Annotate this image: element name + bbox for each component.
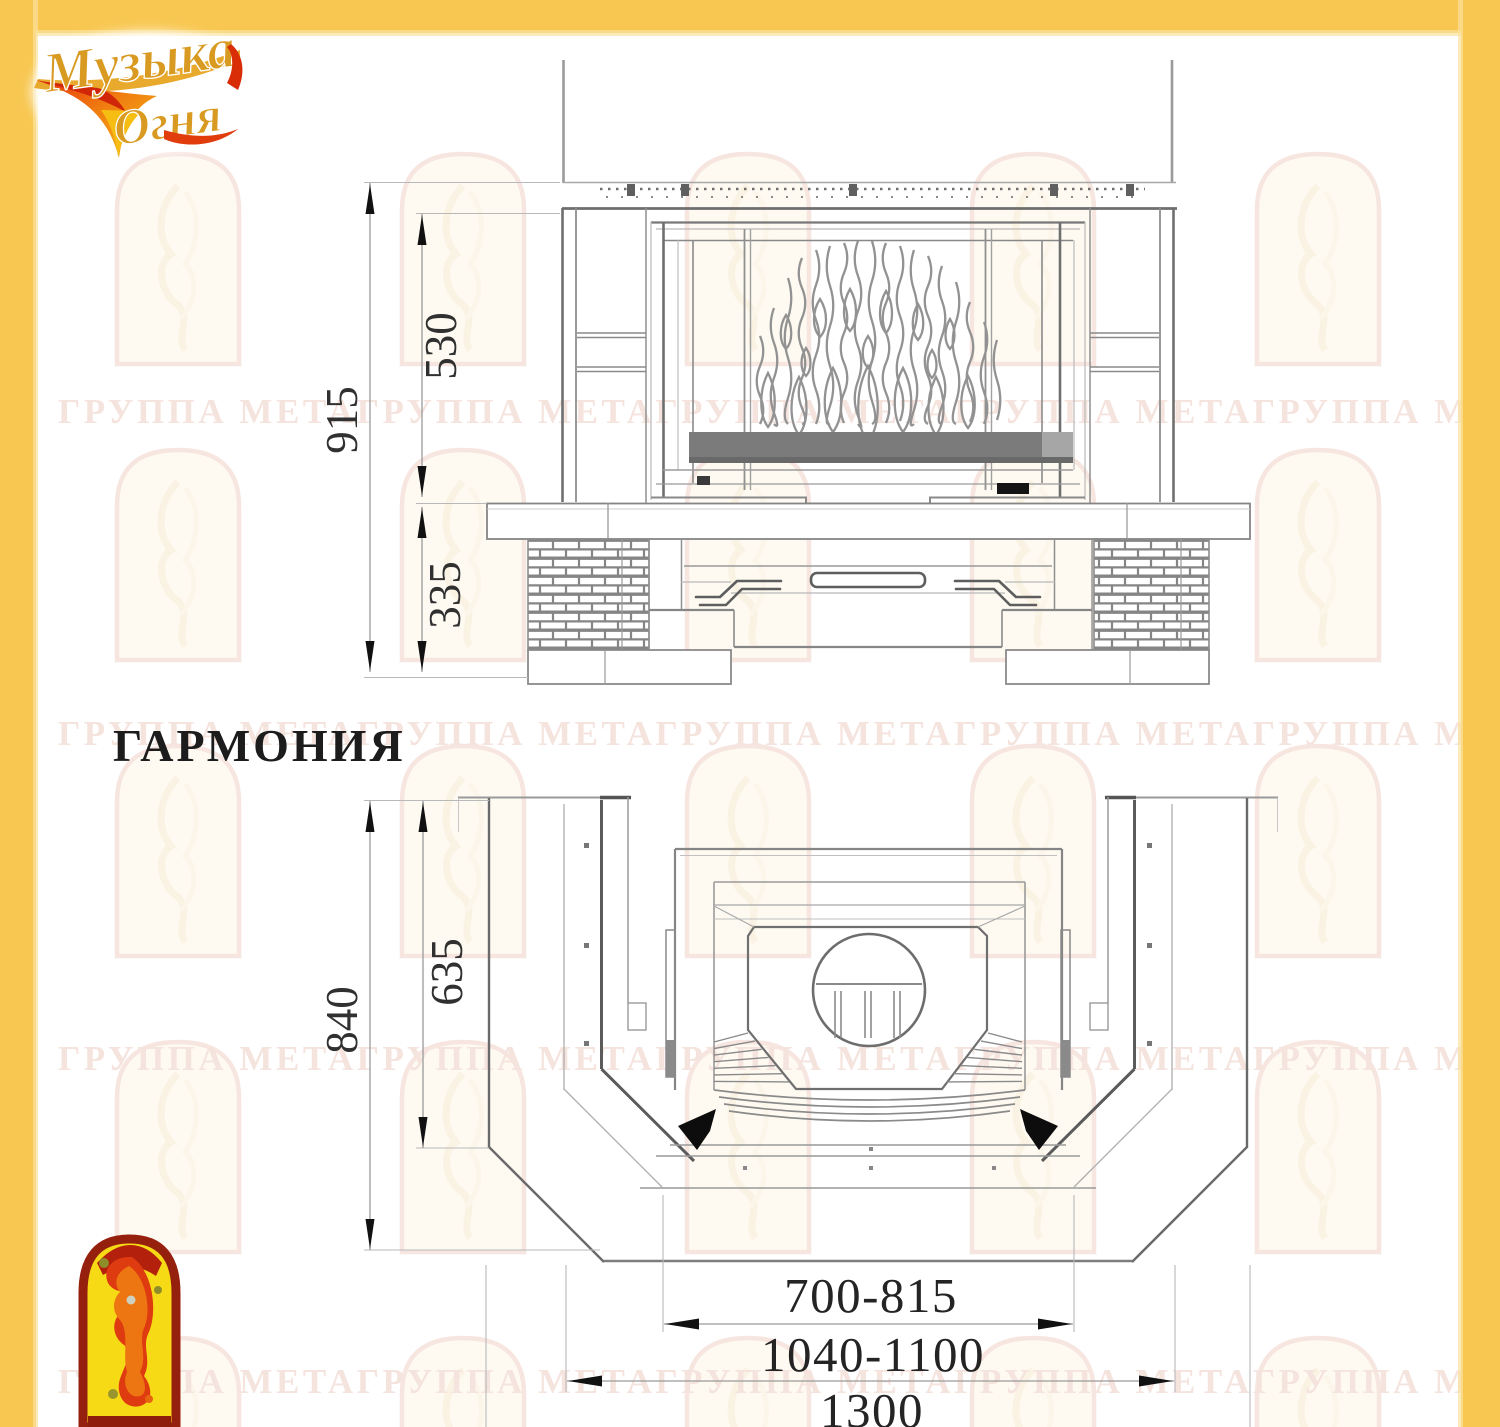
svg-text:1300: 1300 — [820, 1383, 924, 1427]
svg-text:700-815: 700-815 — [784, 1268, 958, 1323]
svg-text:840: 840 — [317, 986, 367, 1054]
svg-text:915: 915 — [317, 386, 367, 454]
svg-text:1040-1100: 1040-1100 — [761, 1327, 985, 1382]
svg-text:335: 335 — [420, 561, 470, 629]
svg-text:ГРУППА МЕТАГРУППА МЕТАГРУППА М: ГРУППА МЕТАГРУППА МЕТАГРУППА МЕТАГРУППА … — [58, 392, 1500, 431]
svg-text:ГРУППА МЕТАГРУППА МЕТАГРУППА М: ГРУППА МЕТАГРУППА МЕТАГРУППА МЕТАГРУППА … — [58, 1039, 1500, 1078]
svg-text:ГАРМОНИЯ: ГАРМОНИЯ — [113, 720, 406, 771]
svg-text:635: 635 — [422, 938, 472, 1006]
svg-text:530: 530 — [416, 312, 466, 380]
